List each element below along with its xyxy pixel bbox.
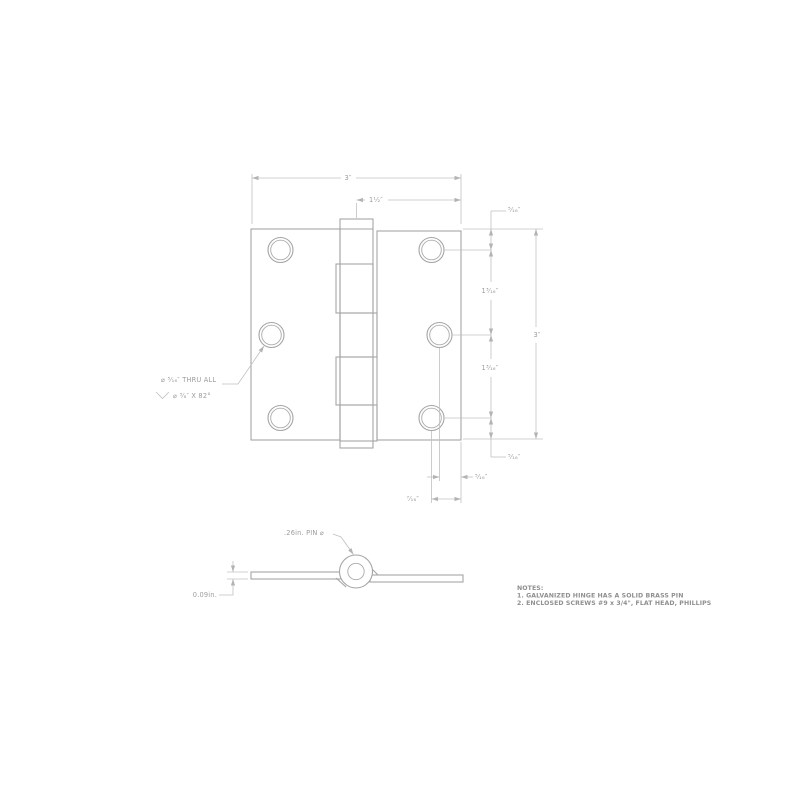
dim-margin-top-label: ⁵⁄₁₆″: [508, 206, 521, 214]
dim-hole-to-corner-edge-label: ⁷⁄₁₆″: [407, 495, 420, 503]
dim-overall-height-label: 3″: [533, 331, 540, 339]
background: [0, 0, 800, 800]
dim-margin-bottom-label: ⁵⁄₁₆″: [508, 453, 521, 461]
knuckle-profile: [340, 555, 373, 588]
leaf-thickness-label: 0.09in.: [193, 591, 217, 599]
dim-overall-width-label: 3″: [344, 174, 351, 182]
dim-hole-to-side-edge-label: ⁵⁄₁₆″: [475, 473, 488, 481]
callout-countersink-label: ⌀ ³⁄₈″ X 82°: [173, 392, 211, 400]
note-item-1: 1. GALVANIZED HINGE HAS A SOLID BRASS PI…: [517, 593, 683, 600]
callout-thru-all-label: ⌀ ⁵⁄₁₆″ THRU ALL: [161, 376, 216, 384]
hinge-technical-drawing: 3″ 1¹⁄₂″ ⁵⁄₁₆″ 1³⁄₁₆″ 1³⁄₁₆″ ⁵⁄₁₆″: [0, 0, 800, 800]
dim-spacing-upper-label: 1³⁄₁₆″: [482, 287, 499, 295]
drawing-canvas: 3″ 1¹⁄₂″ ⁵⁄₁₆″ 1³⁄₁₆″ 1³⁄₁₆″ ⁵⁄₁₆″: [0, 0, 800, 800]
pin-diameter-label: .26in. PIN ⌀: [284, 529, 324, 537]
dim-pin-to-edge-label: 1¹⁄₂″: [369, 196, 383, 204]
dim-spacing-lower-label: 1³⁄₁₆″: [482, 364, 499, 372]
notes-heading: NOTES:: [517, 585, 543, 592]
note-item-2: 2. ENCLOSED SCREWS #9 x 3/4", FLAT HEAD,…: [517, 600, 711, 607]
